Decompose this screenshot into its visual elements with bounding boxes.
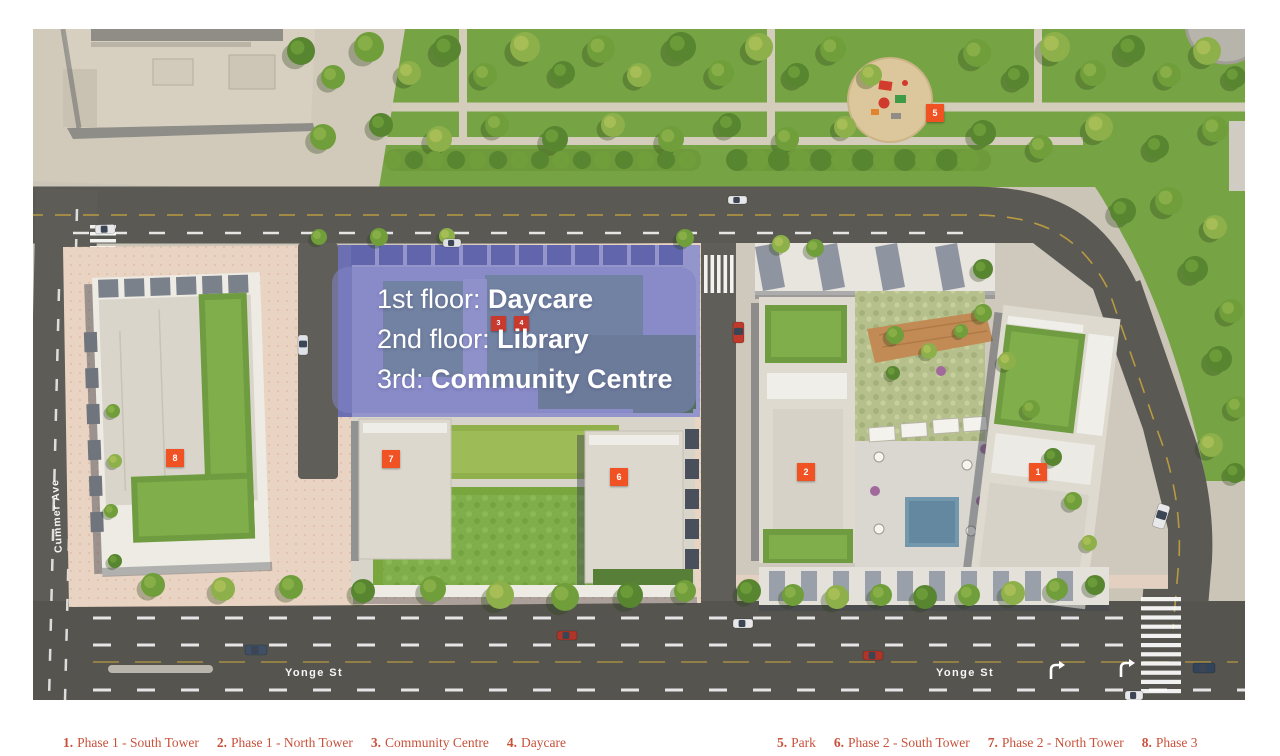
edge-building xyxy=(1229,121,1245,191)
site-plan-page: 1st floor: Daycare 2nd floor: Library 3r… xyxy=(0,0,1280,756)
legend-item: 8.Phase 3 xyxy=(1142,735,1198,751)
community-hub-floor-info: 1st floor: Daycare 2nd floor: Library 3r… xyxy=(377,279,673,399)
legend-item: 7.Phase 2 - North Tower xyxy=(988,735,1124,751)
legend: 1.Phase 1 - South Tower 2.Phase 1 - Nort… xyxy=(0,735,1280,755)
driveway-east xyxy=(701,243,737,601)
map-marker-6: 6 xyxy=(610,468,628,486)
legend-group-left: 1.Phase 1 - South Tower 2.Phase 1 - Nort… xyxy=(63,735,566,751)
legend-item: 5.Park xyxy=(777,735,816,751)
street-label-yonge-east: Yonge St xyxy=(905,667,1025,679)
map-marker-5: 5 xyxy=(926,104,944,122)
legend-group-right: 5.Park 6.Phase 2 - South Tower 7.Phase 2… xyxy=(777,735,1197,751)
yonge-road xyxy=(33,601,1245,700)
legend-item: 2.Phase 1 - North Tower xyxy=(217,735,353,751)
overlay-line-2: 2nd floor: Library xyxy=(377,319,673,359)
phase3-building xyxy=(82,272,272,577)
overlay-line-1: 1st floor: Daycare xyxy=(377,279,673,319)
aerial-site-render: 1st floor: Daycare 2nd floor: Library 3r… xyxy=(33,29,1245,700)
legend-item: 6.Phase 2 - South Tower xyxy=(834,735,970,751)
street-label-yonge-west: Yonge St xyxy=(254,667,374,679)
legend-item: 3.Community Centre xyxy=(371,735,489,751)
legend-item: 1.Phase 1 - South Tower xyxy=(63,735,199,751)
map-marker-7: 7 xyxy=(382,450,400,468)
playground xyxy=(848,58,932,142)
legend-item: 4.Daycare xyxy=(507,735,566,751)
median-island xyxy=(108,665,213,673)
overlay-line-3: 3rd: Community Centre xyxy=(377,359,673,399)
map-marker-2: 2 xyxy=(797,463,815,481)
map-marker-8: 8 xyxy=(166,449,184,467)
map-marker-1: 1 xyxy=(1029,463,1047,481)
